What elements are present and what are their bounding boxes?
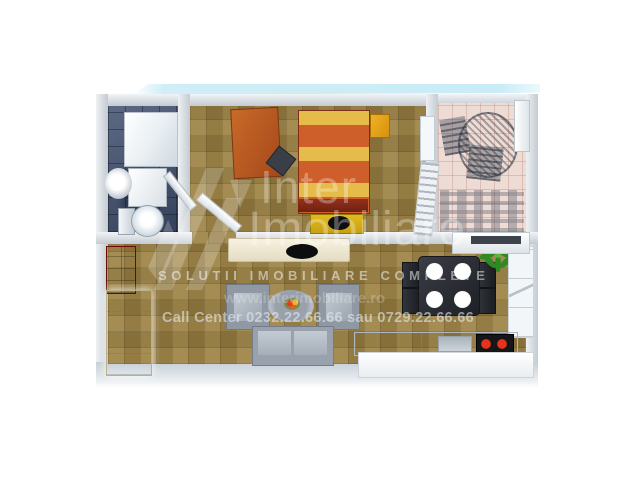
cabinet-top xyxy=(471,236,521,244)
floorplan-render: Inter Imobiliare SOLUTII IMOBILIARE COMP… xyxy=(0,0,640,480)
plate xyxy=(426,291,443,308)
stove xyxy=(476,334,514,354)
watermark-call-center: Call Center 0232.22.66.66 sau 0729.22.66… xyxy=(162,310,474,326)
sofa xyxy=(252,326,334,366)
balcony-round-table xyxy=(458,112,518,178)
watermark-tagline: SOLUTII IMOBILIARE COMPLETE xyxy=(158,268,489,283)
bed-footboard xyxy=(298,199,368,212)
balcony-door xyxy=(514,100,530,152)
bedroom-radiator xyxy=(420,116,435,161)
kitchen-upper-cabinet xyxy=(452,232,530,254)
watermark-website: www.interimobiliare.ro xyxy=(224,290,385,307)
balcony-railing-shadow xyxy=(440,190,524,232)
red-wall-cabinet xyxy=(106,246,136,294)
kitchen-counter-front xyxy=(358,352,534,378)
inter-imobiliare-logo-icon xyxy=(148,150,268,307)
dining-table xyxy=(418,256,480,316)
stove-burner xyxy=(481,339,491,349)
bathroom-sink xyxy=(105,168,132,199)
kitchen-sink xyxy=(438,336,472,352)
stove-burner xyxy=(497,339,507,349)
tall-wardrobe xyxy=(106,290,152,376)
plate xyxy=(454,291,471,308)
nightstand xyxy=(370,114,390,138)
bedroom-tv xyxy=(328,216,350,230)
kitchen-shelf-unit xyxy=(508,246,534,338)
sofa-cushion xyxy=(294,331,327,355)
sofa-cushion xyxy=(258,331,291,355)
living-tv xyxy=(286,244,318,259)
